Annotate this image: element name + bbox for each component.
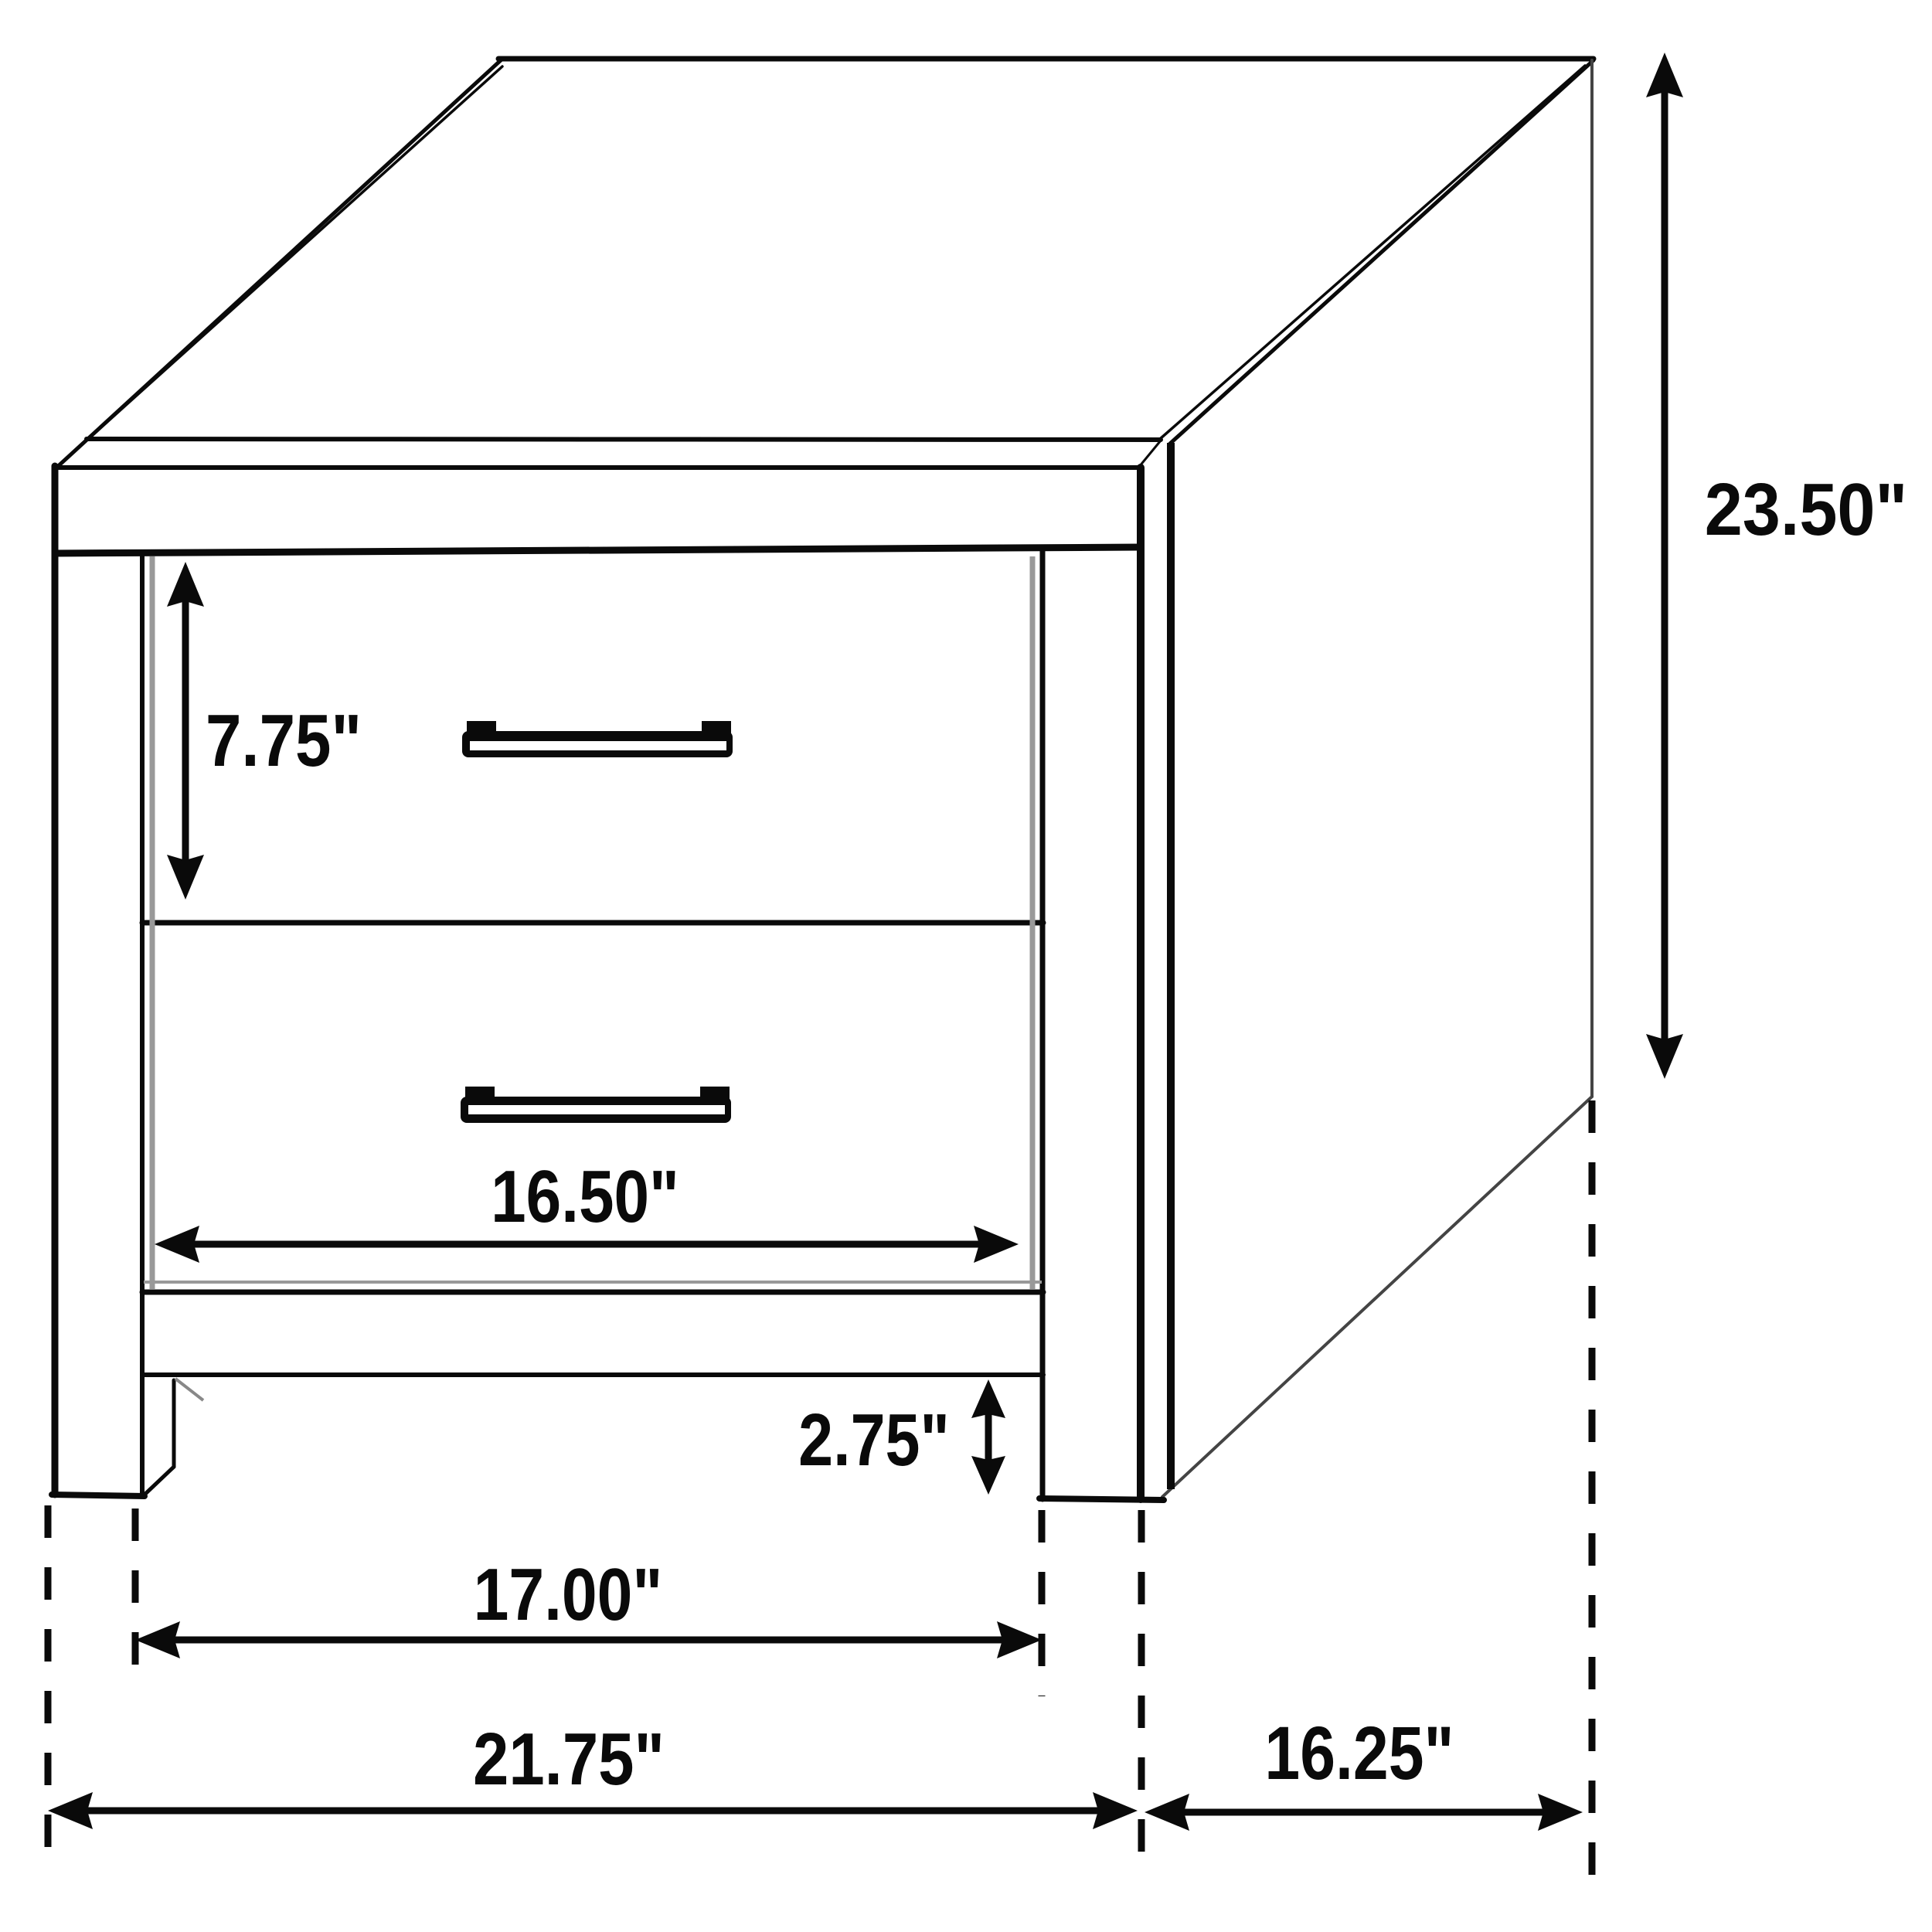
svg-text:21.75": 21.75" xyxy=(473,1719,665,1801)
svg-text:16.50": 16.50" xyxy=(491,1155,679,1238)
svg-text:2.75": 2.75" xyxy=(798,1398,950,1481)
svg-text:17.00": 17.00" xyxy=(474,1553,663,1635)
svg-text:7.75": 7.75" xyxy=(206,700,362,783)
svg-text:16.25": 16.25" xyxy=(1264,1713,1454,1796)
svg-text:23.50": 23.50" xyxy=(1705,468,1908,551)
